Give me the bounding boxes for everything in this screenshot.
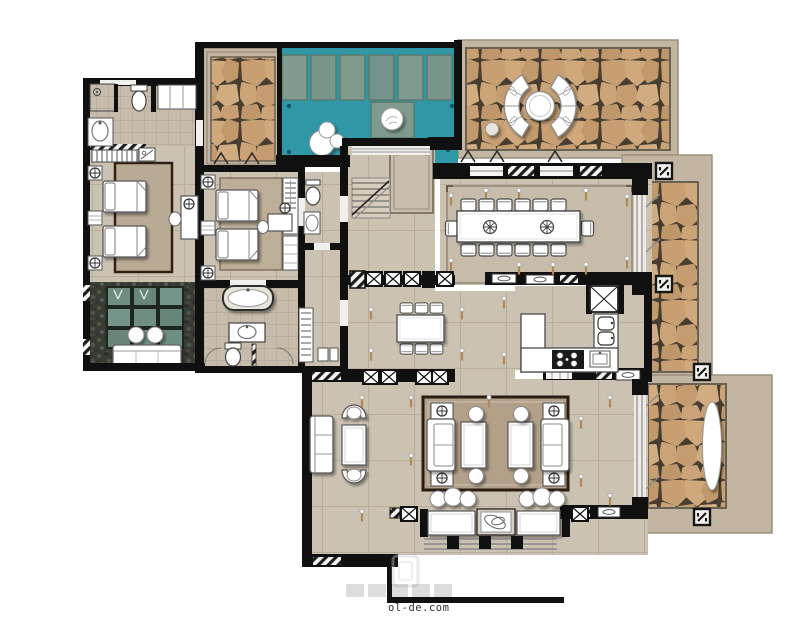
column-marker-icon (694, 509, 710, 525)
refrigerator (590, 286, 618, 312)
column-xbox-icon (401, 507, 417, 521)
toilet-tank (306, 180, 320, 185)
floor-plan-drawing: ol-de.com (0, 0, 800, 641)
side-table (543, 403, 565, 419)
window-hatch (508, 166, 534, 176)
window-hatch (560, 275, 578, 283)
slatted-bench (92, 150, 137, 162)
accessory-tray (139, 148, 155, 161)
sphere-on-pad (381, 108, 403, 130)
kitchen-sink (590, 351, 610, 367)
garden-stool (147, 327, 163, 343)
sofa (541, 419, 569, 471)
window-hatch (83, 285, 90, 301)
wall-entry-top (342, 138, 440, 146)
sconce-box (526, 275, 554, 284)
wall-hall-right (340, 146, 348, 373)
planter (517, 511, 560, 535)
wall-pool-right (454, 40, 462, 144)
nook-table (397, 315, 444, 342)
column-xbox-icon (366, 272, 382, 286)
porch-column (420, 509, 428, 537)
column-marker-icon (656, 276, 672, 292)
glass-door-strip (634, 195, 646, 279)
door-gap (340, 300, 348, 326)
window-hatch (390, 508, 400, 518)
sconce-box (598, 507, 620, 517)
toilet (306, 187, 320, 205)
column-xbox-icon (363, 370, 379, 384)
watermark-glyphs (346, 584, 452, 597)
wall-pool-top (195, 42, 461, 48)
wall-chunk (632, 179, 648, 195)
sofa (427, 419, 455, 471)
column-xbox-icon (381, 370, 397, 384)
oval-planter (703, 402, 722, 490)
wall-pad-pool (277, 44, 282, 166)
pouf-cluster (519, 488, 565, 507)
stone-court-nw (203, 48, 283, 168)
window-hatch (313, 557, 341, 565)
floor-plan-canvas: ol-de.com (0, 0, 800, 641)
desk (268, 214, 292, 231)
planter (428, 511, 475, 535)
ornament-box (477, 509, 515, 535)
courtyard (90, 282, 198, 366)
bathtub (223, 286, 273, 310)
column-xbox-icon (572, 507, 588, 521)
wall-chunk (632, 379, 648, 395)
twin-bed (216, 190, 258, 221)
centerpiece-icon (541, 221, 554, 234)
garden-stool (128, 327, 144, 343)
double-oven (594, 314, 618, 348)
porch-column (562, 509, 570, 537)
door-gap (314, 243, 330, 250)
door-gap (196, 120, 203, 146)
twin-bed (103, 226, 146, 257)
entry-column-row (348, 271, 455, 288)
column-solid (422, 271, 435, 288)
window-hatch (350, 271, 365, 288)
threshold (352, 146, 430, 155)
twin-bed (216, 229, 258, 260)
column-xbox-icon (416, 370, 432, 384)
window-hatch (580, 166, 602, 176)
dining-table (457, 211, 580, 242)
staircase (352, 178, 391, 218)
side-table (431, 403, 453, 419)
toilet (132, 91, 146, 111)
cooktop (552, 350, 584, 369)
desk-chair (169, 212, 181, 226)
sconce-box (616, 370, 640, 380)
entry-hall (352, 178, 391, 218)
column-xbox-icon (437, 272, 453, 286)
toilet-tank (131, 85, 147, 91)
rug-entry (390, 147, 433, 213)
lamp-icon (203, 268, 213, 278)
glass-door-strip (634, 395, 646, 497)
desk-chair (258, 221, 269, 234)
wall-sofa (310, 416, 333, 473)
lamp-icon (203, 177, 213, 187)
sconce-box (492, 274, 516, 283)
watermark-text: ol-de.com (388, 602, 449, 614)
lamp-icon (184, 199, 194, 209)
nightstand (88, 211, 102, 225)
toilet (226, 348, 241, 366)
window-hatch (311, 372, 341, 380)
column-marker-icon (656, 163, 672, 179)
coffee-table (461, 422, 486, 468)
window-hatch (83, 339, 90, 355)
lounge-table (342, 425, 366, 465)
shelf-unit (158, 85, 196, 109)
column-xbox-icon (404, 272, 420, 286)
wall-leftwing-bottom (83, 363, 205, 371)
storage-box (318, 348, 328, 361)
side-table (543, 470, 565, 486)
lamp-icon (280, 203, 290, 213)
shower (90, 84, 115, 111)
storage-box (330, 348, 338, 361)
lamp-icon (90, 258, 100, 268)
twin-bed (103, 181, 146, 212)
column-xbox-icon (432, 370, 448, 384)
wall-bedroom2-top (195, 165, 305, 172)
column-xbox-icon (385, 272, 401, 286)
partition (252, 344, 256, 366)
nightstand (201, 221, 215, 235)
pouf-cluster (430, 488, 476, 507)
coffee-table (508, 422, 533, 468)
column-marker-icon (694, 364, 710, 380)
wall-kitchen-right (644, 272, 652, 382)
wall-fridge-nook (618, 284, 624, 314)
sphere-ornament (486, 123, 499, 136)
side-table (431, 470, 453, 486)
lamp-icon (90, 168, 100, 178)
centerpiece-icon (484, 221, 497, 234)
door-gap (340, 196, 348, 222)
garden-bench (113, 345, 181, 366)
